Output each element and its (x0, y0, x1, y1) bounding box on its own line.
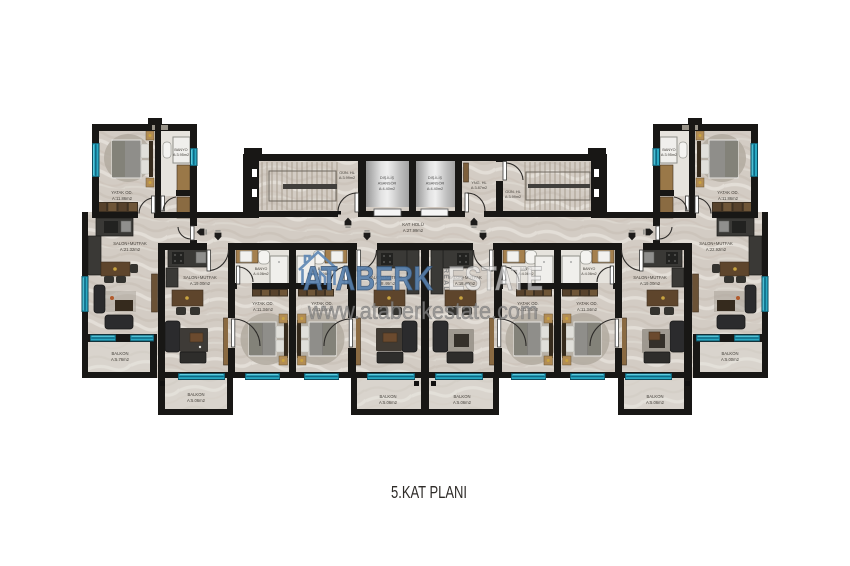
svg-text:YATAK OD.: YATAK OD. (252, 301, 273, 306)
svg-text:A:5.00m2: A:5.00m2 (721, 357, 740, 362)
svg-text:A:5.06m2: A:5.06m2 (453, 400, 472, 405)
svg-text:A:3.87m2: A:3.87m2 (471, 186, 487, 190)
svg-text:SALON+MUTFAK: SALON+MUTFAK (183, 275, 217, 280)
svg-text:BALKON: BALKON (454, 394, 471, 399)
svg-text:A:19.00m2: A:19.00m2 (640, 281, 661, 286)
svg-text:ASANSÖR: ASANSÖR (378, 182, 397, 186)
svg-text:SALON+MUTFAK: SALON+MUTFAK (699, 241, 733, 246)
svg-text:A:19.00m2: A:19.00m2 (190, 281, 211, 286)
svg-text:A:11.86m2: A:11.86m2 (112, 196, 133, 201)
svg-text:ASANSÖR: ASANSÖR (426, 182, 445, 186)
svg-text:YNG. HL: YNG. HL (471, 181, 486, 185)
svg-text:BALKON: BALKON (112, 351, 129, 356)
svg-text:A:3.95m2: A:3.95m2 (661, 153, 677, 157)
svg-text:A:4.40m2: A:4.40m2 (427, 187, 443, 191)
svg-text:A:21.32m2: A:21.32m2 (120, 247, 141, 252)
svg-text:KAT HOLÜ: KAT HOLÜ (402, 222, 424, 227)
svg-text:GÜN. HL: GÜN. HL (505, 190, 520, 194)
svg-text:SALON+MUTFAK: SALON+MUTFAK (113, 241, 147, 246)
svg-text:BANYO: BANYO (174, 148, 187, 152)
svg-text:ESTATE: ESTATE (448, 260, 543, 298)
svg-text:A:3.95m2: A:3.95m2 (173, 153, 189, 157)
svg-text:YATAK OD.: YATAK OD. (111, 190, 132, 195)
svg-text:BALKON: BALKON (722, 351, 739, 356)
svg-text:A:5.06m2: A:5.06m2 (379, 400, 398, 405)
svg-text:A:27.99m2: A:27.99m2 (403, 228, 424, 233)
svg-text:A:4.06m2: A:4.06m2 (581, 272, 596, 276)
svg-text:A:22.92m2: A:22.92m2 (706, 247, 727, 252)
svg-text:ATABERK: ATABERK (303, 260, 433, 298)
svg-text:GÜN. HL: GÜN. HL (339, 171, 354, 175)
svg-text:BALKON: BALKON (647, 394, 664, 399)
svg-text:A:11.34m2: A:11.34m2 (577, 307, 598, 312)
svg-text:A:4.06m2: A:4.06m2 (253, 272, 268, 276)
svg-text:A:3.99m2: A:3.99m2 (339, 176, 355, 180)
svg-text:BANYO: BANYO (255, 267, 268, 271)
svg-text:A:5.06m2: A:5.06m2 (187, 398, 206, 403)
svg-text:DIŞ.İLİŞ: DIŞ.İLİŞ (428, 175, 443, 180)
svg-text:BANYO: BANYO (583, 267, 596, 271)
svg-text:YATAK OD.: YATAK OD. (576, 301, 597, 306)
svg-text:A:3.99m2: A:3.99m2 (505, 195, 521, 199)
svg-text:A:11.86m2: A:11.86m2 (718, 196, 739, 201)
svg-text:5.KAT PLANI: 5.KAT PLANI (391, 482, 467, 502)
svg-text:A:5.76m2: A:5.76m2 (111, 357, 130, 362)
svg-text:DIŞ.İLİŞ: DIŞ.İLİŞ (380, 175, 395, 180)
svg-text:BANYO: BANYO (662, 148, 675, 152)
svg-text:A:11.34m2: A:11.34m2 (253, 307, 274, 312)
svg-text:SALON+MUTFAK: SALON+MUTFAK (633, 275, 667, 280)
svg-text:www.ataberkestate.com: www.ataberkestate.com (307, 298, 538, 325)
svg-text:A:5.06m2: A:5.06m2 (646, 400, 665, 405)
svg-text:BALKON: BALKON (188, 392, 205, 397)
svg-text:A:4.40m2: A:4.40m2 (379, 187, 395, 191)
svg-text:YATAK OD.: YATAK OD. (717, 190, 738, 195)
svg-text:BALKON: BALKON (380, 394, 397, 399)
